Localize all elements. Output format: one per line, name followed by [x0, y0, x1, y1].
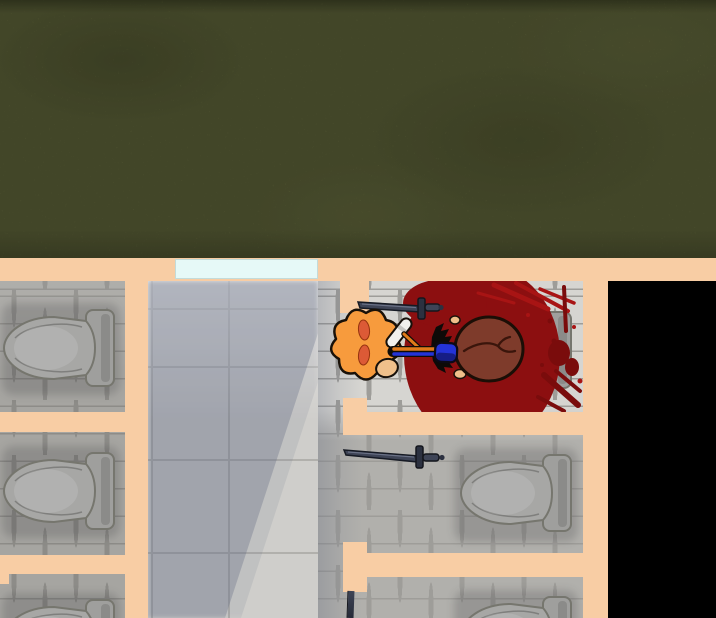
- stall-divider: [343, 553, 583, 577]
- right-wall: [583, 281, 608, 618]
- stall-divider-stub: [0, 555, 9, 584]
- corridor-floor: [148, 281, 318, 618]
- stall-divider: [0, 555, 125, 574]
- grass-field: [0, 0, 716, 258]
- player-character[interactable]: [326, 296, 462, 392]
- left-wall: [125, 281, 148, 618]
- toilet[interactable]: [457, 595, 577, 618]
- toilet[interactable]: [457, 453, 577, 533]
- frosted-window: [175, 259, 318, 279]
- katana-on-floor[interactable]: [338, 441, 450, 471]
- unexplored-area: [608, 281, 716, 618]
- toilet[interactable]: [0, 451, 120, 531]
- top-wall: [0, 258, 716, 281]
- stall-divider: [0, 412, 125, 432]
- toilet[interactable]: [0, 308, 120, 388]
- katana-guard: [416, 446, 423, 468]
- weapon-blue-head: [435, 342, 458, 362]
- toilet[interactable]: [0, 598, 120, 618]
- katana-handle: [423, 454, 439, 461]
- game-viewport: [0, 0, 716, 618]
- katana-on-floor-vertical[interactable]: [347, 591, 355, 618]
- stall-divider: [343, 412, 583, 435]
